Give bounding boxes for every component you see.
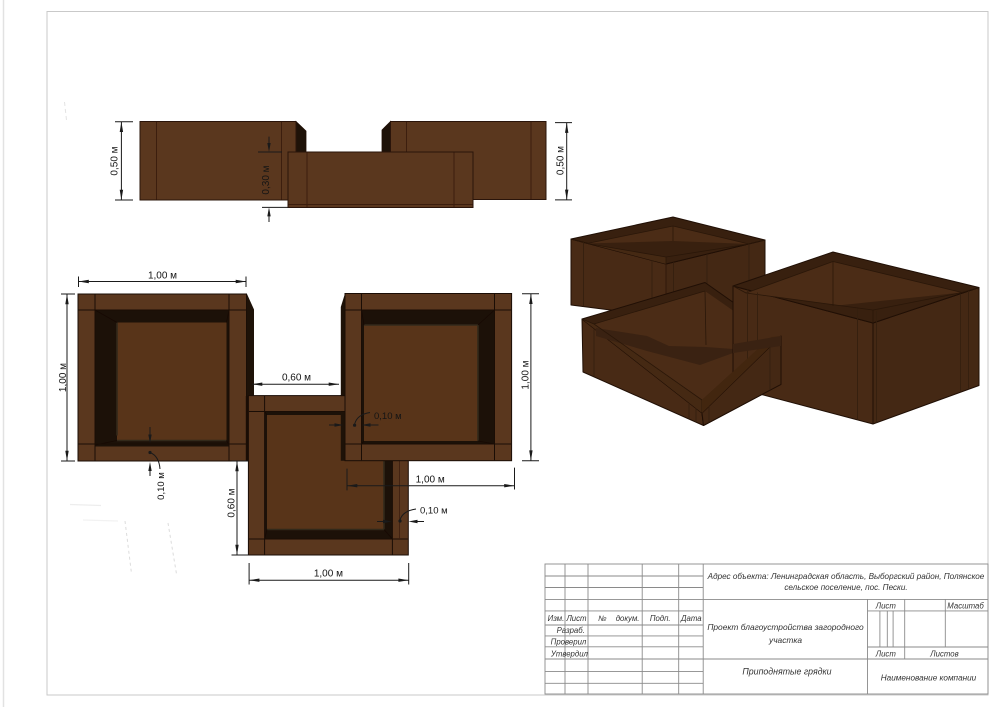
svg-text:0,50 м: 0,50 м <box>110 146 121 175</box>
svg-text:сельское поселение, пос. Пески: сельское поселение, пос. Пески. <box>784 583 907 592</box>
svg-text:Листов: Листов <box>929 649 958 658</box>
svg-text:Лист: Лист <box>875 601 897 610</box>
svg-text:0,30 м: 0,30 м <box>261 165 272 194</box>
svg-text:Приподнятые грядки: Приподнятые грядки <box>742 667 831 677</box>
svg-text:Адрес объекта: Ленинградская о: Адрес объекта: Ленинградская область, Вы… <box>707 572 985 581</box>
svg-text:Наименование компании: Наименование компании <box>881 674 977 683</box>
svg-text:№: № <box>598 614 606 623</box>
svg-text:0,60 м: 0,60 м <box>227 488 238 517</box>
svg-text:Лист: Лист <box>875 649 897 658</box>
svg-text:0,50 м: 0,50 м <box>556 146 567 175</box>
svg-text:1,00 м: 1,00 м <box>148 271 177 282</box>
svg-text:Изм.: Изм. <box>548 614 565 623</box>
svg-text:0,10 м: 0,10 м <box>420 506 448 517</box>
svg-text:0,10 м: 0,10 м <box>374 411 402 422</box>
svg-text:0,60 м: 0,60 м <box>282 373 311 384</box>
svg-text:докум.: докум. <box>616 614 640 623</box>
svg-text:Разраб.: Разраб. <box>557 626 585 635</box>
svg-text:1,00 м: 1,00 м <box>58 363 69 392</box>
svg-text:1,00 м: 1,00 м <box>416 475 445 486</box>
svg-text:Проверил: Проверил <box>551 637 587 646</box>
svg-text:Утвердил: Утвердил <box>550 650 589 659</box>
svg-text:0,10 м: 0,10 м <box>156 472 167 500</box>
svg-text:Проект благоустройства загород: Проект благоустройства загородного <box>707 622 864 632</box>
svg-text:Подп.: Подп. <box>650 614 671 623</box>
svg-text:Лист: Лист <box>565 614 587 623</box>
svg-text:Масштаб: Масштаб <box>947 601 984 610</box>
svg-text:1,00 м: 1,00 м <box>314 569 343 580</box>
svg-text:участка: участка <box>768 635 802 645</box>
svg-text:Дата: Дата <box>680 614 702 623</box>
svg-text:1,00 м: 1,00 м <box>521 360 532 389</box>
